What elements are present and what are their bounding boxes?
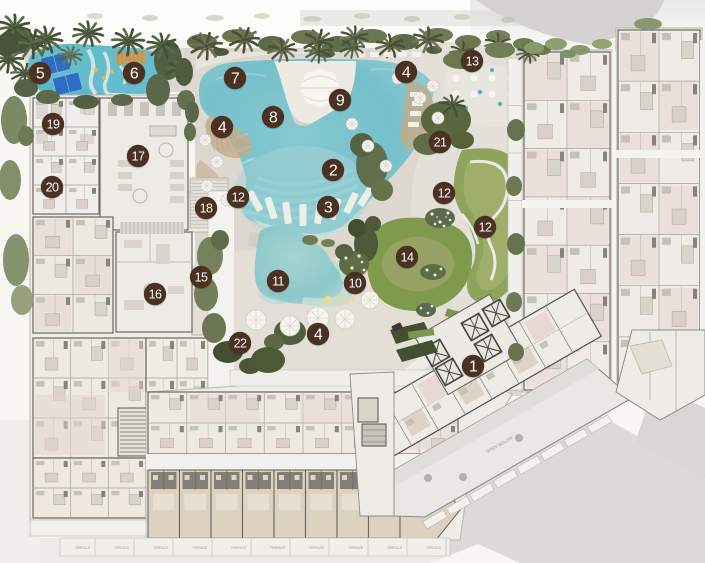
svg-text:15: 15 xyxy=(195,270,208,284)
svg-text:TERRACE: TERRACE xyxy=(348,546,363,550)
svg-text:4: 4 xyxy=(402,65,411,82)
svg-text:11: 11 xyxy=(272,274,284,288)
svg-text:TERRACE: TERRACE xyxy=(270,546,285,550)
svg-text:18: 18 xyxy=(200,201,213,215)
svg-text:22: 22 xyxy=(234,336,247,350)
svg-text:TERRACE: TERRACE xyxy=(153,546,168,550)
svg-text:TERRACE: TERRACE xyxy=(192,546,207,550)
svg-text:8: 8 xyxy=(269,110,278,127)
svg-text:12: 12 xyxy=(479,220,492,234)
svg-text:4: 4 xyxy=(314,327,323,344)
svg-text:13: 13 xyxy=(466,54,479,68)
svg-text:5: 5 xyxy=(36,66,45,83)
svg-text:3: 3 xyxy=(324,200,333,217)
svg-text:TERRACE: TERRACE xyxy=(309,546,324,550)
svg-text:14: 14 xyxy=(401,250,414,264)
svg-text:TERRACE: TERRACE xyxy=(231,546,246,550)
svg-text:TERRACE: TERRACE xyxy=(426,546,441,550)
svg-text:17: 17 xyxy=(132,149,145,163)
svg-text:TERRACE: TERRACE xyxy=(114,546,129,550)
svg-text:19: 19 xyxy=(47,117,60,131)
svg-text:1: 1 xyxy=(469,359,478,376)
svg-text:9: 9 xyxy=(336,93,345,110)
svg-text:10: 10 xyxy=(349,276,362,290)
svg-text:12: 12 xyxy=(232,190,245,204)
svg-text:4: 4 xyxy=(218,120,227,137)
svg-text:20: 20 xyxy=(46,180,59,194)
svg-text:21: 21 xyxy=(434,135,447,149)
svg-text:TERRACE: TERRACE xyxy=(75,546,90,550)
svg-text:7: 7 xyxy=(231,71,240,88)
svg-text:TERRACE: TERRACE xyxy=(387,546,402,550)
svg-text:6: 6 xyxy=(130,66,139,83)
svg-text:16: 16 xyxy=(149,287,162,301)
svg-text:12: 12 xyxy=(438,186,451,200)
svg-text:2: 2 xyxy=(329,163,338,180)
